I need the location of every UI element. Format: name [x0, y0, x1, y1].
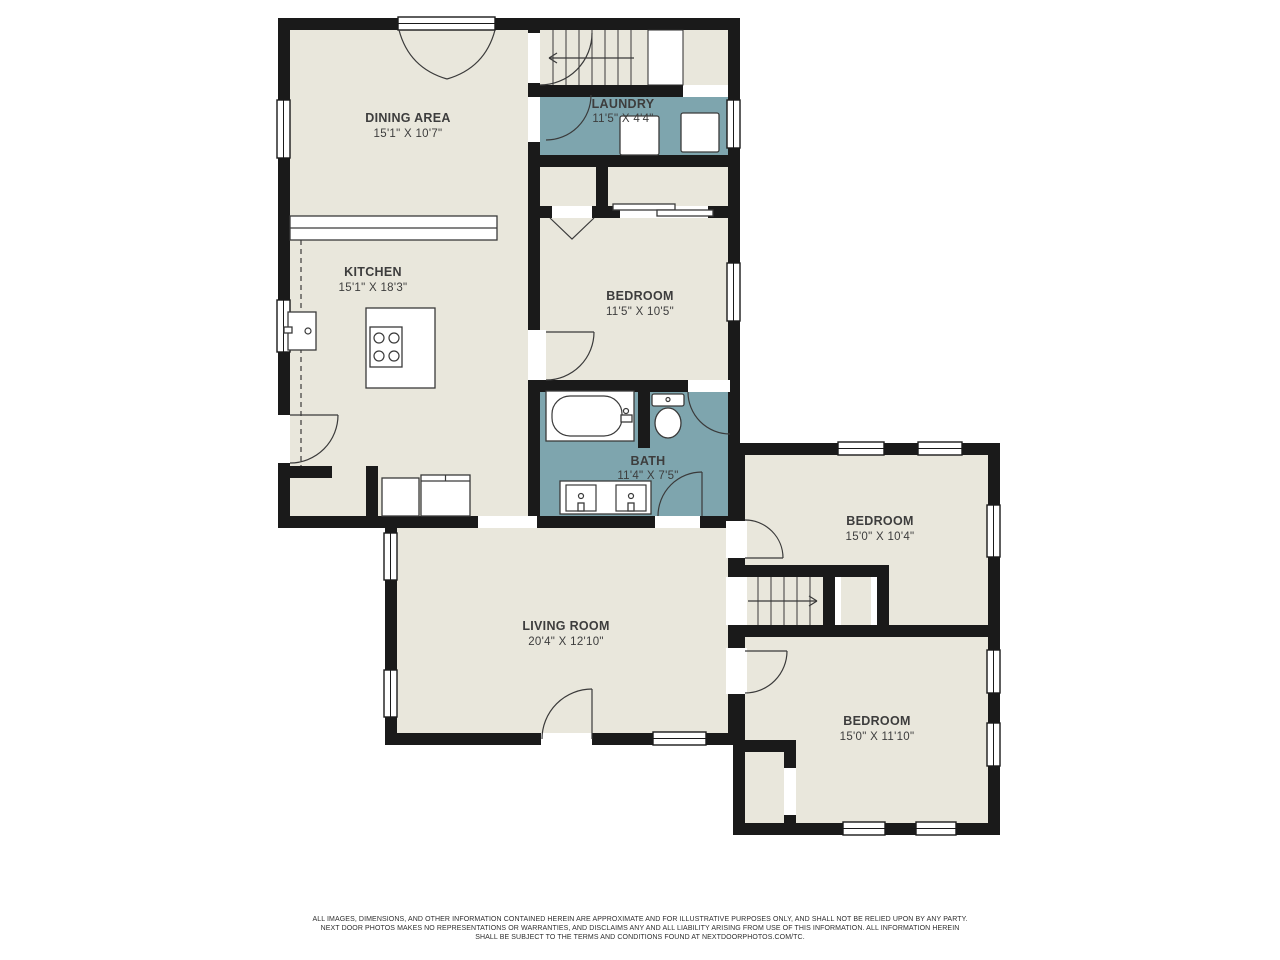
laundry-label: LAUNDRY — [592, 97, 655, 111]
window — [987, 723, 1000, 766]
dining-dims: 15'1" X 10'7" — [374, 128, 443, 140]
floorplan-drawing: DINING AREA 15'1" X 10'7" KITCHEN 15'1" … — [0, 0, 1280, 960]
kitchen-island — [366, 308, 435, 388]
bedroom1-dims: 11'5" X 10'5" — [606, 306, 674, 318]
dining-label: DINING AREA — [365, 111, 450, 125]
window — [727, 263, 740, 321]
living-label: LIVING ROOM — [522, 619, 609, 633]
kitchen-appliances — [382, 475, 470, 516]
upper-closet — [648, 30, 683, 85]
window — [987, 505, 1000, 557]
bath-label: BATH — [631, 454, 666, 468]
window — [653, 732, 706, 745]
bedroom2-dims: 15'0" X 10'4" — [846, 531, 915, 543]
living-dims: 20'4" X 12'10" — [528, 636, 604, 648]
window — [384, 670, 397, 717]
bathtub — [546, 391, 634, 441]
toilet — [652, 394, 684, 438]
kitchen-sink — [284, 312, 316, 350]
window — [398, 17, 495, 30]
bedroom2-label: BEDROOM — [846, 514, 913, 528]
disclaimer-line-2: NEXT DOOR PHOTOS MAKES NO REPRESENTATION… — [321, 925, 960, 932]
window — [727, 100, 740, 148]
footer-disclaimer: ALL IMAGES, DIMENSIONS, AND OTHER INFORM… — [312, 916, 967, 941]
kitchen-dims: 15'1" X 18'3" — [339, 282, 408, 294]
laundry-dims: 11'5" X 4'4" — [592, 113, 653, 125]
disclaimer-line-1: ALL IMAGES, DIMENSIONS, AND OTHER INFORM… — [312, 916, 967, 923]
dryer — [681, 113, 719, 152]
stove — [370, 327, 402, 367]
bath-dims: 11'4" X 7'5" — [617, 470, 678, 482]
bedroom3-label: BEDROOM — [843, 714, 910, 728]
window — [838, 442, 884, 455]
floorplan-page: DINING AREA 15'1" X 10'7" KITCHEN 15'1" … — [0, 0, 1280, 960]
window — [987, 650, 1000, 693]
window — [277, 100, 290, 158]
kitchen-label: KITCHEN — [344, 265, 402, 279]
bedroom1-label: BEDROOM — [606, 289, 673, 303]
window — [843, 822, 885, 835]
window — [384, 533, 397, 580]
window — [916, 822, 956, 835]
vanity — [560, 481, 651, 514]
bedroom3-dims: 15'0" X 11'10" — [840, 731, 915, 743]
room-right-block — [745, 455, 988, 823]
window — [918, 442, 962, 455]
disclaimer-line-3: SHALL BE SUBJECT TO THE TERMS AND CONDIT… — [475, 934, 805, 941]
